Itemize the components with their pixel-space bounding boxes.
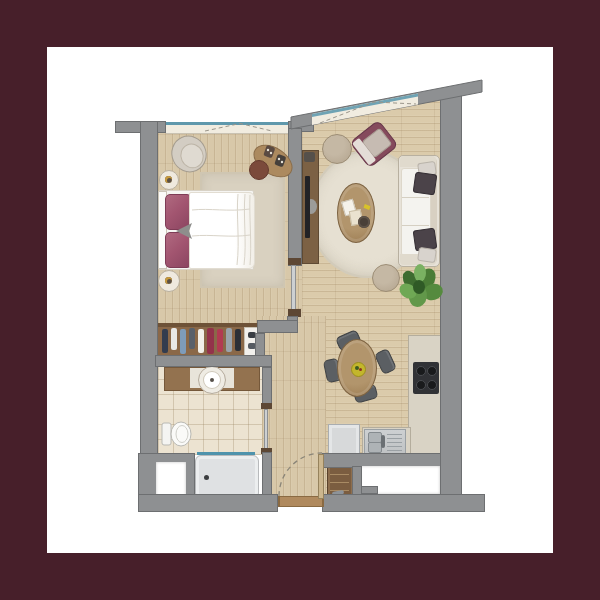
wardrobe-clothes-item	[217, 329, 223, 352]
wardrobe-clothes-item	[235, 329, 241, 351]
sofa-seat-divider	[402, 225, 429, 226]
floor-plan-image	[0, 0, 600, 600]
wardrobe-clothes-item	[198, 329, 204, 353]
wall-bedroom-bathroom	[155, 355, 272, 367]
nightstand	[159, 170, 179, 190]
wall-niche-step	[360, 486, 378, 494]
bedroom-sliding-door	[291, 265, 296, 310]
wall-hall-horizontal	[257, 320, 298, 333]
wall-right	[440, 94, 462, 495]
entry-door-leaf	[318, 454, 324, 499]
wardrobe-clothes-item	[226, 328, 232, 352]
wardrobe-clothes-item	[189, 328, 195, 349]
burner	[427, 366, 437, 376]
burner	[416, 366, 426, 376]
bed-pillow	[165, 232, 192, 268]
burner	[427, 380, 437, 390]
cabinet-shelf	[330, 482, 349, 483]
fruit-bowl	[351, 362, 366, 377]
fruit	[359, 368, 362, 371]
bathroom-basin	[198, 366, 226, 394]
cooktop	[413, 362, 439, 394]
bed-duvet	[189, 192, 255, 269]
wall-niche-divider	[352, 466, 362, 495]
nightstand	[158, 270, 180, 292]
bedroom-window-sill	[166, 125, 288, 134]
sofa-cushion-dark	[413, 172, 438, 196]
sink-drainboard	[387, 433, 402, 451]
coffee-table	[337, 183, 375, 243]
kitchen-sink	[364, 429, 406, 455]
burner	[416, 380, 426, 390]
pouf	[372, 264, 400, 292]
tv-console-speaker	[304, 152, 315, 162]
sofa-seat-divider	[402, 197, 429, 198]
wardrobe-clothes-item	[180, 329, 186, 354]
coffee-table-decor	[363, 204, 370, 210]
dining-table	[337, 339, 377, 397]
sofa-cushion-light	[417, 247, 437, 263]
wall-bottom-right	[322, 494, 485, 512]
basin-drain	[210, 378, 214, 382]
wardrobe-clothes-item	[171, 328, 177, 350]
sink-faucet	[381, 435, 385, 448]
open-wardrobe	[157, 323, 262, 359]
cabinet-shelf	[330, 474, 349, 475]
bathroom-sliding-door	[264, 409, 268, 449]
coffee-table-tray	[358, 216, 370, 228]
sink-bowl	[368, 442, 382, 453]
shower-glass-screen	[197, 452, 255, 455]
bed-pillow	[165, 194, 192, 230]
wardrobe-clothes-item	[207, 328, 214, 354]
wall-bathroom-right-lower	[262, 452, 272, 497]
shower-tray	[195, 455, 259, 499]
kitchen-counter	[408, 335, 442, 457]
sliding-door-jamb	[288, 258, 301, 265]
wall-partition-bedroom-living	[288, 128, 302, 266]
nightstand-lamp	[165, 176, 172, 183]
nightstand-lamp	[165, 277, 172, 284]
wall-bottom-left	[138, 494, 278, 512]
wardrobe-clothes-item	[162, 329, 168, 353]
pouf	[322, 134, 352, 164]
tv-screen	[305, 176, 310, 238]
shower-drain	[204, 475, 209, 480]
wall-bathroom-right-upper	[262, 367, 272, 405]
sofa	[398, 155, 440, 267]
